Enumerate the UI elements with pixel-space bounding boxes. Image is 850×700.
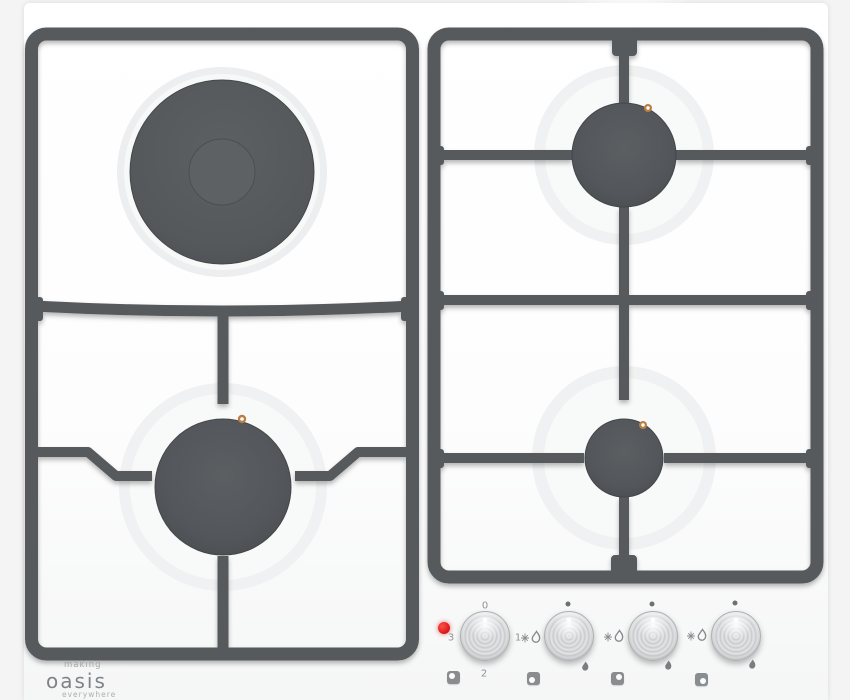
low-flame-icon (581, 661, 590, 673)
knob-pointer-dot (483, 618, 487, 622)
ignition-flame-icon (686, 628, 708, 644)
product-photo: 0 1 2 3 making (0, 0, 850, 700)
knob-pointer-dot (651, 618, 655, 622)
ignition-flame-icon (520, 630, 542, 646)
brand-logo-tagline: everywhere (62, 691, 116, 700)
knob-pointer-dot (567, 618, 571, 622)
electric-knob-label-3: 3 (448, 633, 454, 644)
burner-position-icon-top-right (611, 672, 624, 685)
gas-off-dot-icon (733, 601, 738, 606)
electric-plate (130, 80, 314, 264)
knob-electric-plate[interactable] (460, 611, 510, 661)
gas-off-dot-icon (650, 602, 655, 607)
ignition-flame-icon (603, 629, 625, 645)
gas-burner-back-right-cap (572, 103, 676, 207)
low-flame-icon (748, 659, 757, 671)
knob-gas-back-right[interactable] (628, 611, 678, 661)
knob-gas-front-left[interactable] (544, 611, 594, 661)
brand-logo: making oasis everywhere (46, 661, 116, 699)
hob-graphics (0, 0, 850, 700)
low-flame-icon (664, 660, 673, 672)
brand-logo-name: oasis (46, 671, 116, 691)
knob-pointer-dot (734, 618, 738, 622)
burner-position-icon-bottom-right (695, 673, 708, 686)
gas-burner-front-right-cap (585, 419, 663, 497)
knob-gas-front-right[interactable] (711, 611, 761, 661)
electric-knob-label-2: 2 (481, 669, 487, 680)
electric-knob-label-0: 0 (482, 601, 488, 612)
gas-off-dot-icon (566, 602, 571, 607)
burner-position-icon-bottom-left (527, 672, 540, 685)
burner-position-icon-top-left (447, 671, 460, 684)
